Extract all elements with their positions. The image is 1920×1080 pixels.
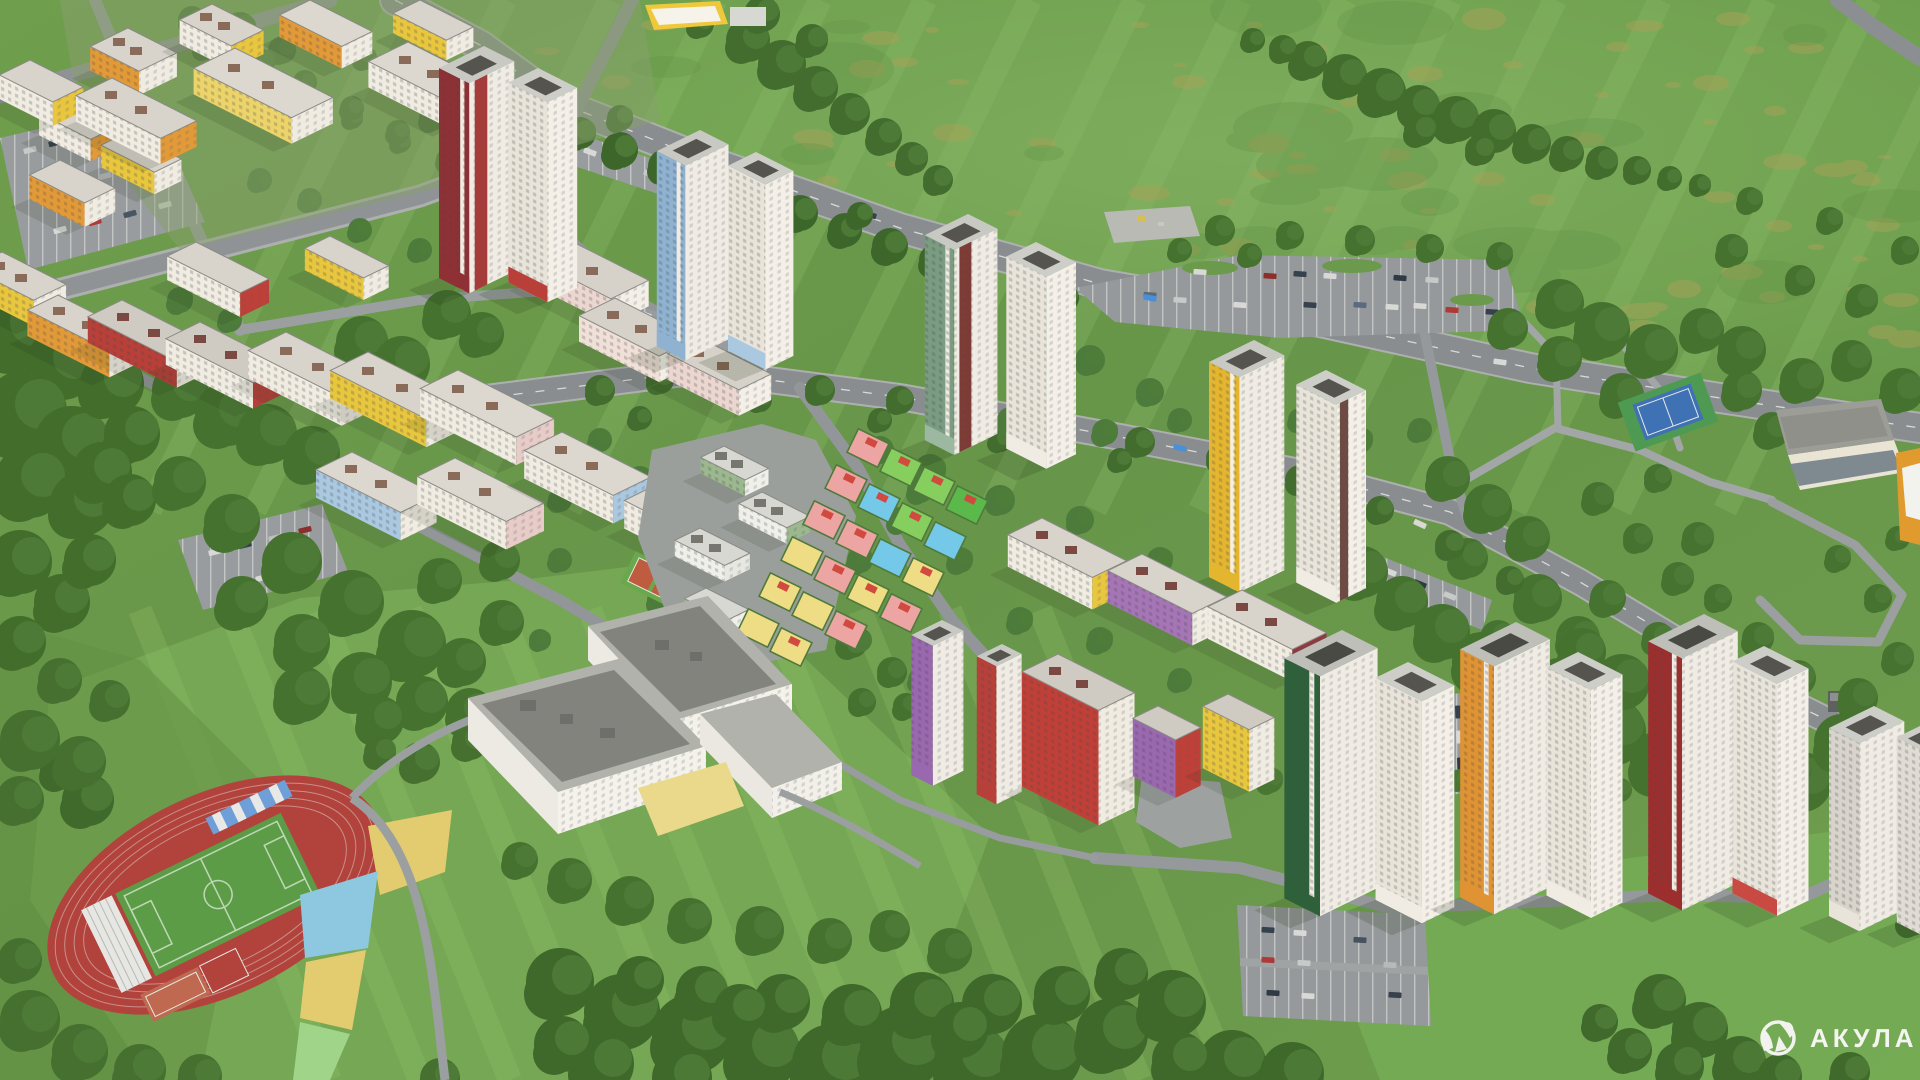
svg-text:АКУЛА: АКУЛА — [1810, 1023, 1918, 1053]
